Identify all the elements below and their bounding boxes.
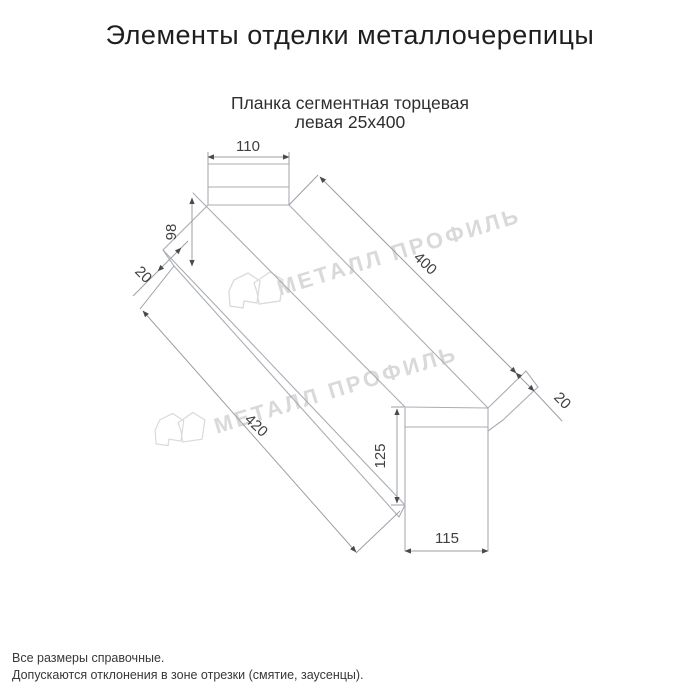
dim-label-110: 110 — [236, 138, 260, 155]
page-title: Элементы отделки металлочерепицы — [0, 20, 700, 51]
dim-label-20-right: 20 — [550, 389, 574, 413]
dim-label-125: 125 — [372, 443, 389, 468]
note-line2: Допускаются отклонения в зоне отрезки (с… — [12, 667, 364, 684]
dim-length-top — [289, 175, 516, 373]
note-line1: Все размеры справочные. — [12, 650, 364, 667]
footer-notes: Все размеры справочные. Допускаются откл… — [12, 650, 364, 684]
dim-length-bottom — [140, 266, 400, 553]
dim-end-height — [391, 407, 404, 505]
watermark-logo-icon — [155, 272, 283, 446]
product-subtitle-line2: левая 25х400 — [0, 113, 700, 132]
dimension-labels: 110 98 20 400 20 420 125 115 — [131, 138, 574, 547]
dim-label-400: 400 — [410, 249, 440, 279]
product-subtitle: Планка сегментная торцевая левая 25х400 — [0, 94, 700, 132]
dim-label-20-left: 20 — [131, 263, 155, 287]
product-subtitle-line1: Планка сегментная торцевая — [0, 94, 700, 113]
profile-outline — [163, 164, 538, 551]
dimension-lines — [133, 152, 562, 553]
dim-label-420: 420 — [241, 411, 271, 441]
dim-label-115: 115 — [435, 530, 459, 547]
dim-label-98: 98 — [163, 224, 180, 241]
catalog-page: МЕТАЛЛ ПРОФИЛЬ МЕТАЛЛ ПРОФИЛЬ — [0, 0, 700, 700]
